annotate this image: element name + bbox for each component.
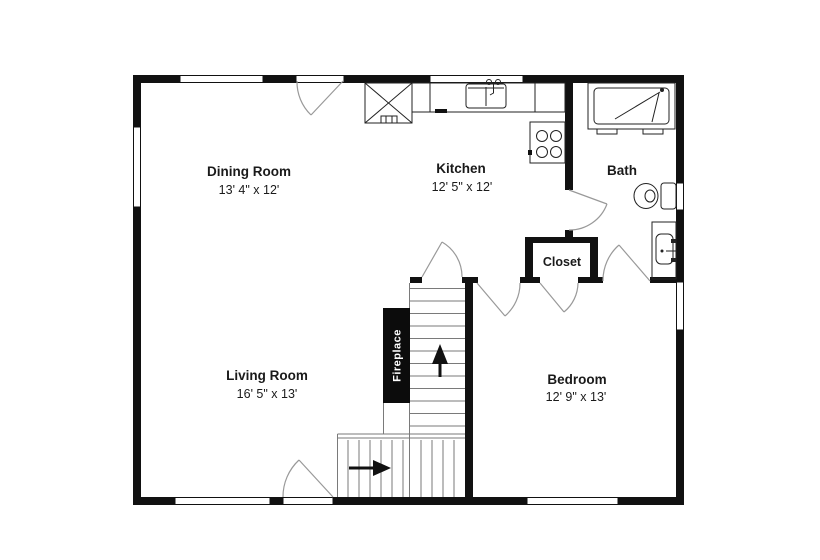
bedroom-door-swing (477, 283, 520, 316)
window-bedroom-right (677, 282, 684, 330)
wall-kitchen-bath (565, 83, 573, 190)
wall-segment (133, 75, 141, 127)
wall-hall-segment (650, 277, 676, 283)
shower-curb (597, 129, 617, 134)
window-kitchen (430, 76, 523, 83)
refrigerator-icon (365, 83, 412, 123)
wall-segment (676, 330, 684, 505)
wall-closet-top (525, 237, 598, 243)
wall-hall-segment (410, 277, 422, 283)
bathroom-sink-icon (652, 222, 676, 279)
toilet-bowl (634, 184, 658, 209)
kitchen-sink-icon (466, 80, 506, 109)
room-label-dining: Dining Room (207, 164, 291, 179)
dishwasher-handle (435, 109, 447, 113)
wall-hall-segment (520, 277, 540, 283)
front-door-swing (283, 460, 333, 497)
wall-stair (465, 283, 473, 497)
range-control (528, 150, 532, 155)
wall-segment (133, 497, 175, 505)
wall-segment (676, 75, 684, 183)
range-outline (530, 122, 565, 163)
shower-head (660, 88, 664, 92)
exterior-walls (133, 75, 684, 505)
room-label-living: Living Room (226, 368, 308, 383)
windows (134, 76, 684, 505)
shower-curb (643, 129, 663, 134)
vanity-basin (656, 234, 673, 264)
toilet-tank (661, 183, 676, 209)
exterior-doors (283, 76, 344, 505)
range-icon (528, 122, 565, 163)
arrow-head (432, 344, 448, 364)
drain-dot (661, 250, 664, 253)
room-label-kitchen: Kitchen (436, 161, 486, 176)
back-door-gap (296, 76, 344, 83)
room-dims-living: 16' 5" x 13' (237, 387, 298, 401)
wall-segment (676, 210, 684, 282)
stair-rail (338, 434, 466, 438)
wall-segment (270, 497, 283, 505)
room-label-bath: Bath (607, 163, 637, 178)
bath-bedroom-door-swing (603, 245, 650, 281)
wall-segment (618, 497, 684, 505)
wall-segment (263, 75, 296, 83)
kitchen-fixtures (365, 80, 565, 164)
room-dims-dining: 13' 4" x 12' (219, 183, 280, 197)
faucet-handle (671, 258, 676, 262)
wall-segment (133, 207, 141, 505)
stair-treads-winder (421, 440, 454, 497)
room-dims-bedroom: 12' 9" x 13' (546, 390, 607, 404)
faucet-handle (671, 239, 676, 243)
refrigerator-base (381, 116, 397, 123)
window-bedroom-bottom (527, 498, 618, 505)
fireplace-label: Fireplace (392, 329, 404, 382)
wall-hall-segment (578, 277, 603, 283)
bath-kitchen-door-swing (569, 190, 607, 230)
wall-segment (523, 75, 684, 83)
stair-up-arrow-icon (432, 344, 448, 377)
toilet-icon (634, 183, 676, 209)
stair-door-swing (422, 242, 462, 277)
closet-door-swing (540, 283, 578, 312)
fireplace-icon: Fireplace (383, 308, 410, 403)
back-door-swing (297, 81, 343, 115)
window-living-bottom (175, 498, 270, 505)
window-living-left (134, 127, 141, 207)
wall-hall-segment (462, 277, 478, 283)
room-label-bedroom: Bedroom (547, 372, 606, 387)
floor-plan: Fireplace (0, 0, 820, 560)
front-door-gap (283, 498, 333, 505)
room-dims-kitchen: 12' 5" x 12' (432, 180, 493, 194)
arrow-head (373, 460, 391, 476)
window-bath-right (677, 183, 684, 210)
bath-fixtures (588, 83, 676, 279)
wall-segment (344, 75, 430, 83)
window-dining (180, 76, 263, 83)
floor-plan-drawing: Fireplace (0, 0, 820, 560)
shower-spray-lines (615, 92, 660, 122)
wall-segment (333, 497, 527, 505)
shower-icon (588, 83, 675, 134)
room-label-closet: Closet (543, 255, 582, 269)
